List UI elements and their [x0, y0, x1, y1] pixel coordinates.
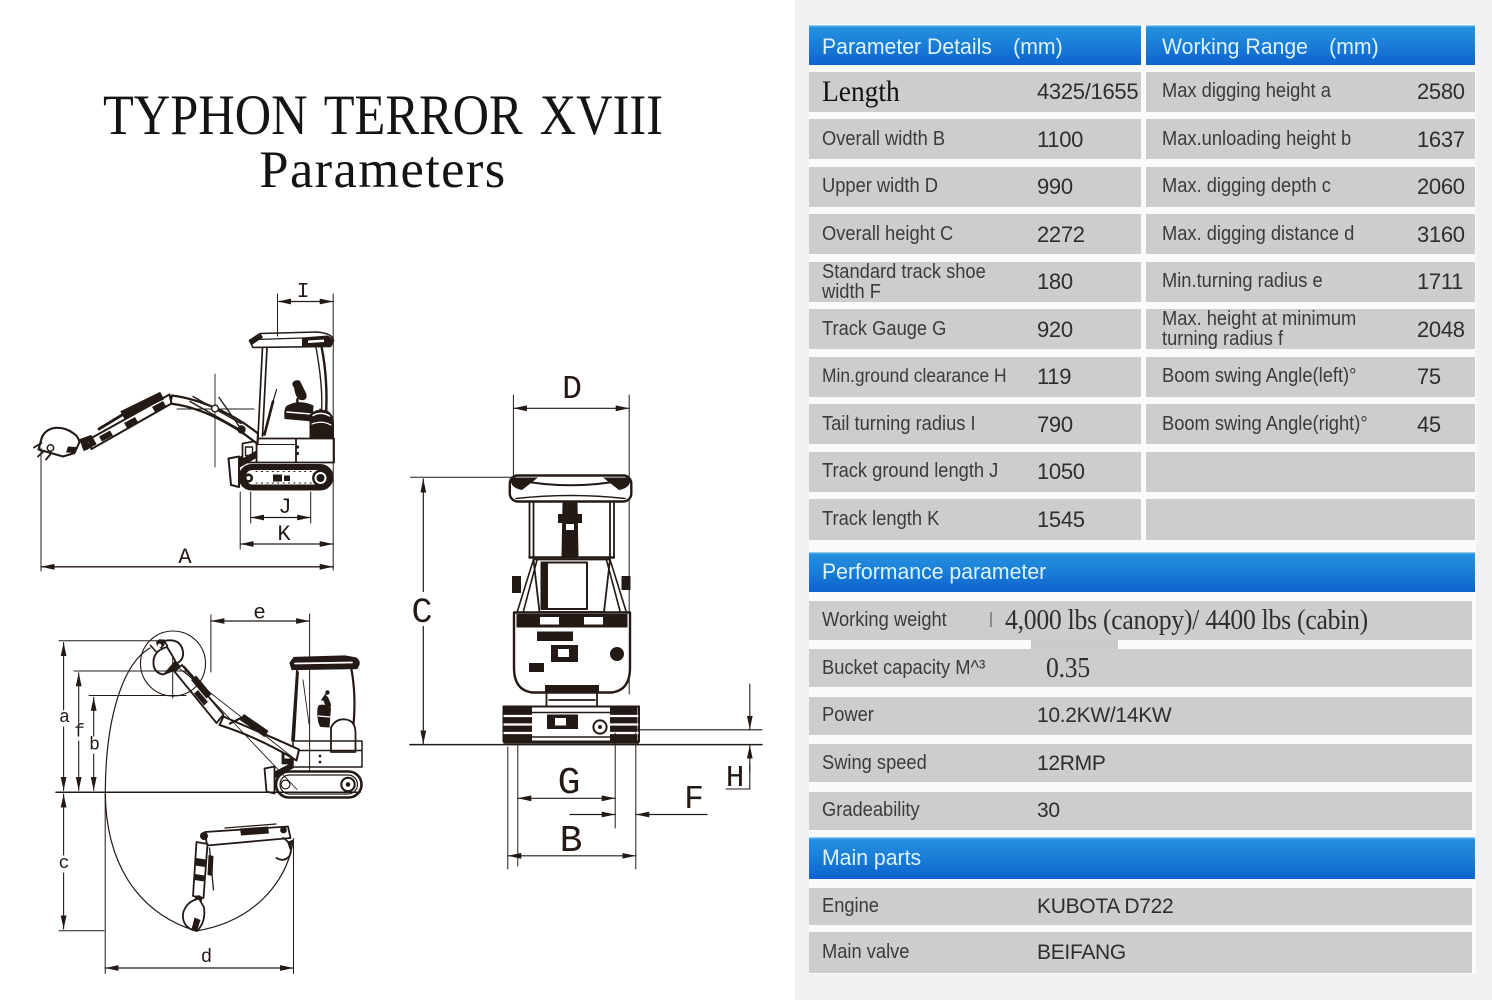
svg-text:K: K — [277, 522, 291, 547]
svg-text:D: D — [562, 371, 582, 408]
svg-text:I: I — [297, 281, 310, 304]
svg-text:C: C — [411, 593, 432, 633]
svg-text:e: e — [253, 603, 266, 626]
svg-text:b: b — [89, 736, 100, 756]
svg-text:H: H — [726, 761, 745, 796]
svg-text:d: d — [201, 946, 212, 968]
svg-text:f: f — [74, 723, 85, 743]
svg-text:B: B — [560, 820, 583, 863]
svg-text:a: a — [59, 708, 70, 728]
svg-text:G: G — [558, 762, 581, 805]
svg-text:F: F — [684, 781, 704, 818]
svg-text:c: c — [59, 854, 70, 874]
svg-text:A: A — [178, 545, 192, 570]
svg-text:J: J — [278, 495, 291, 520]
